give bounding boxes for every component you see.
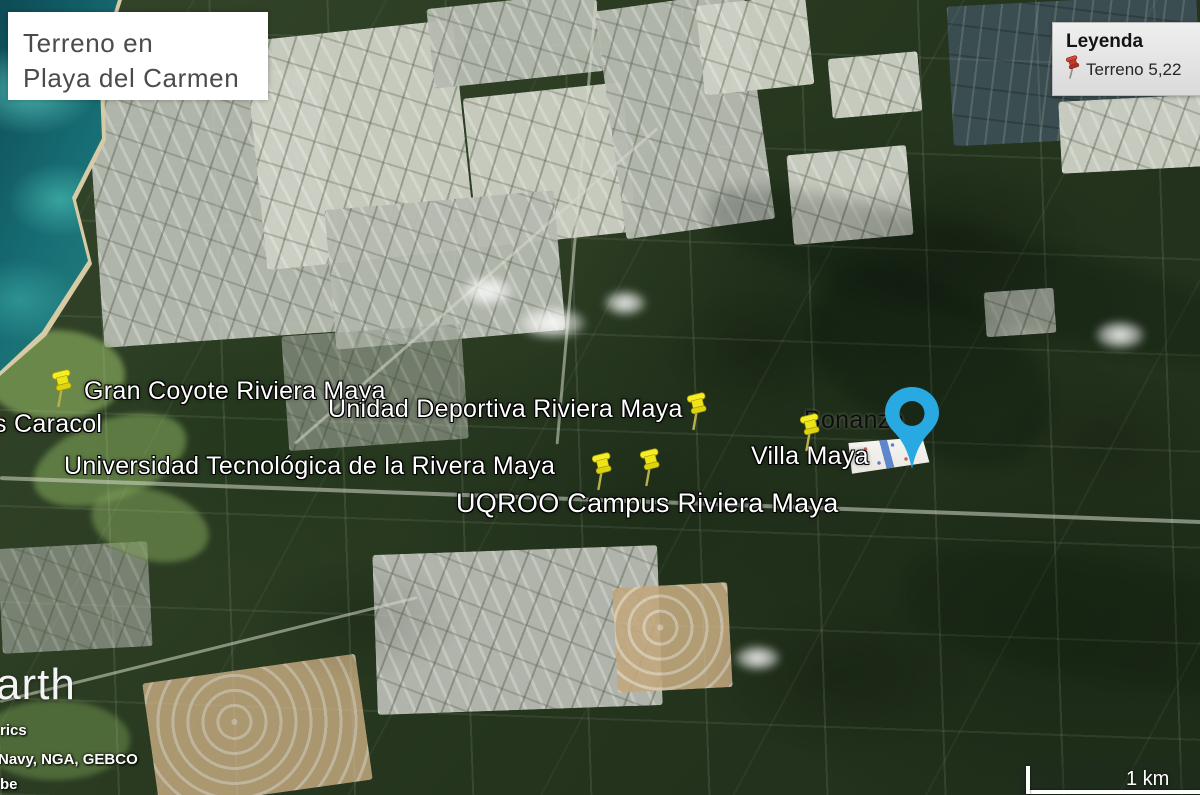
yellow-pushpin-icon[interactable] bbox=[48, 369, 78, 409]
legend-panel: Leyenda Terreno 5,22 bbox=[1052, 22, 1200, 96]
attribution-line: be bbox=[0, 776, 18, 793]
placemark-label-uqroo[interactable]: UQROO Campus Riviera Maya bbox=[456, 488, 839, 519]
cloud bbox=[450, 270, 525, 312]
yellow-pushpin-icon[interactable] bbox=[683, 392, 713, 432]
title-line-1: Terreno en bbox=[23, 26, 268, 61]
attribution-line: Navy, NGA, GEBCO bbox=[0, 751, 138, 768]
cloud bbox=[595, 285, 655, 321]
cloud bbox=[505, 300, 600, 346]
cloud bbox=[1085, 315, 1155, 355]
placemark-label-universidad[interactable]: Universidad Tecnológica de la Rivera May… bbox=[64, 452, 555, 481]
legend-title: Leyenda bbox=[1066, 31, 1200, 53]
google-earth-watermark: arth bbox=[0, 660, 76, 710]
legend-item-label: Terreno 5,22 bbox=[1086, 60, 1181, 80]
red-pushpin-icon bbox=[1065, 55, 1082, 81]
scale-bar-line bbox=[1026, 790, 1200, 794]
blue-location-marker-icon[interactable] bbox=[883, 386, 941, 471]
placemark-label-caracol[interactable]: s Caracol bbox=[0, 410, 102, 439]
scale-bar-label: 1 km bbox=[1126, 768, 1169, 791]
yellow-pushpin-icon[interactable] bbox=[636, 448, 666, 488]
satellite-map[interactable]: Gran Coyote Riviera Maya s Caracol Unida… bbox=[0, 0, 1200, 795]
scale-bar-tick bbox=[1026, 766, 1030, 794]
title-line-2: Playa del Carmen bbox=[23, 61, 268, 96]
yellow-pushpin-icon[interactable] bbox=[796, 413, 826, 453]
title-card: Terreno en Playa del Carmen bbox=[8, 12, 268, 100]
legend-item: Terreno 5,22 bbox=[1064, 60, 1200, 80]
cloud bbox=[725, 640, 790, 676]
attribution-line: rics bbox=[0, 722, 27, 739]
placemark-label-unidad-deportiva[interactable]: Unidad Deportiva Riviera Maya bbox=[328, 395, 683, 424]
yellow-pushpin-icon[interactable] bbox=[588, 452, 618, 492]
